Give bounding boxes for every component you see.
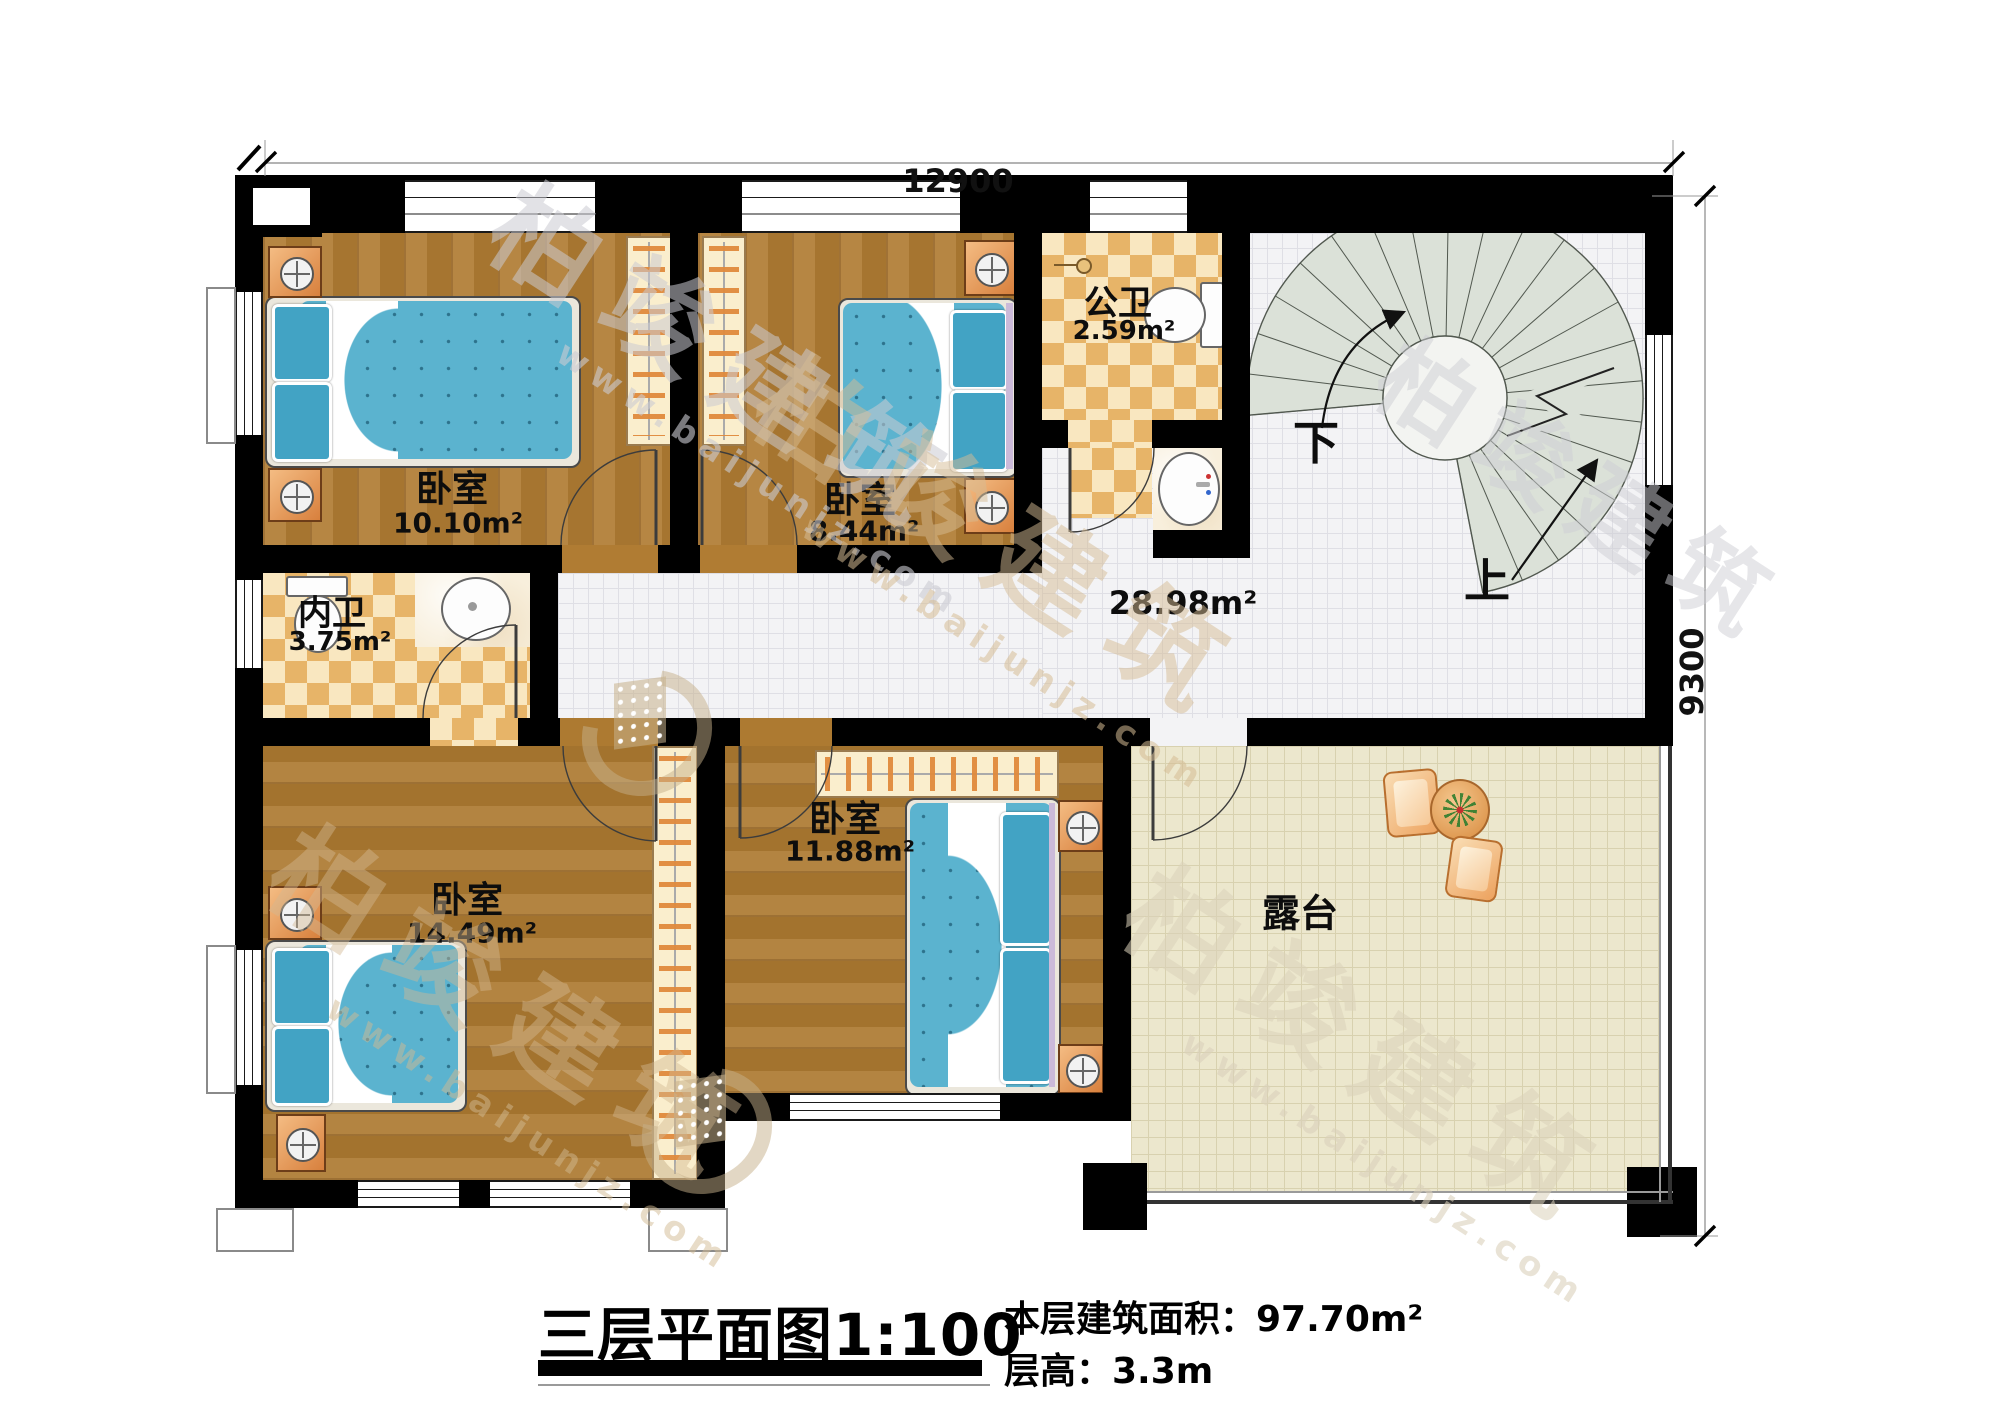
room-label: 露台 [1262, 883, 1338, 938]
room-label: 卧室 [431, 871, 503, 923]
room-area: 14.49m² [407, 917, 537, 950]
room-label: 卧室 [416, 460, 488, 512]
title-underline-bar [538, 1360, 982, 1376]
door-bedroom-top-mid [702, 450, 797, 545]
stair-down-label: 下 [1293, 407, 1339, 473]
room-area: 2.59m² [1073, 316, 1176, 346]
room-area: 28.98m² [1109, 584, 1258, 622]
dimension-top-label: 12900 [902, 162, 1013, 200]
dimension-right-label: 9300 [1673, 627, 1711, 716]
room-area: 8.44m² [809, 515, 920, 548]
spiral-staircase [1247, 200, 1643, 592]
title-underline-thin [538, 1384, 990, 1386]
door-terrace [1153, 746, 1247, 840]
note-floor-height: 层高：3.3m [1004, 1342, 1213, 1394]
stair-up-label: 上 [1464, 545, 1510, 611]
floor-plan-page: 12900 9300 卧室 10.10m² 卧室 8.44m² 公卫 2.59m… [0, 0, 2000, 1413]
door-bedroom-top-left [561, 450, 656, 545]
room-area: 11.88m² [785, 835, 915, 868]
stair-well [1383, 336, 1507, 460]
door-inner-bath [423, 625, 516, 718]
room-area: 3.75m² [289, 627, 392, 657]
note-floor-area: 本层建筑面积：97.70m² [1004, 1290, 1423, 1342]
door-public-bath [1070, 448, 1154, 532]
door-bedroom-bottom-left [563, 746, 656, 841]
room-area: 10.10m² [393, 507, 523, 540]
